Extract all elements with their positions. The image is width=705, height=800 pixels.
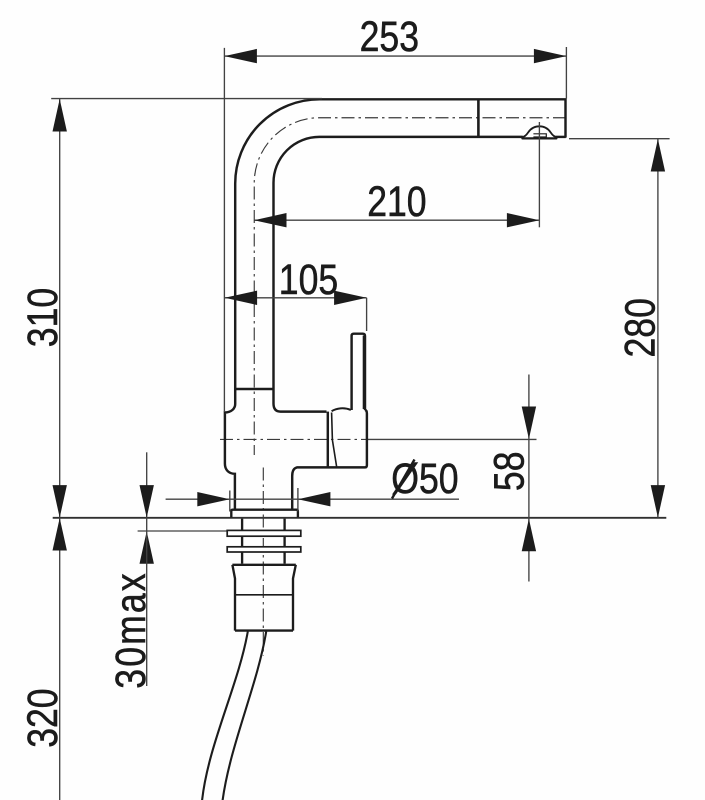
svg-text:105: 105 [279, 257, 338, 303]
svg-text:58: 58 [487, 451, 533, 491]
svg-text:210: 210 [367, 179, 426, 225]
svg-text:253: 253 [360, 14, 419, 60]
svg-text:310: 310 [20, 288, 66, 347]
svg-text:280: 280 [618, 298, 664, 357]
svg-text:320: 320 [20, 688, 66, 747]
svg-text:30max: 30max [108, 571, 154, 688]
svg-text:Ø50: Ø50 [391, 456, 458, 502]
